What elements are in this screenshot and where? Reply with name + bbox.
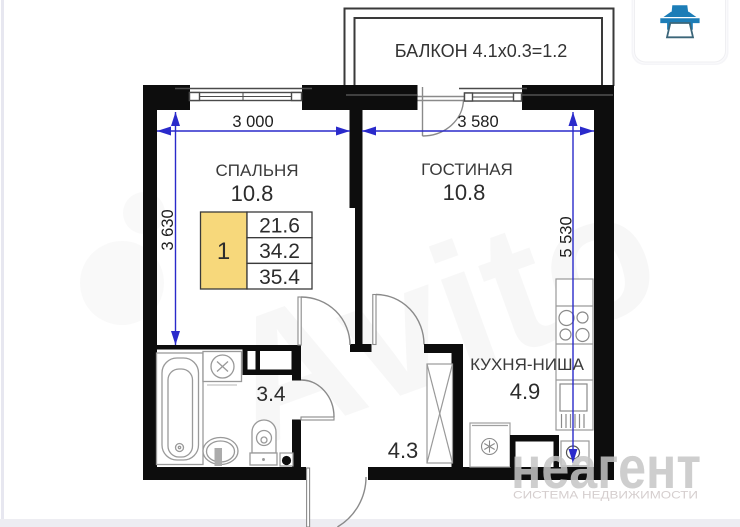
svg-text:БАЛКОН 4.1x0.3=1.2: БАЛКОН 4.1x0.3=1.2 [395,41,568,61]
svg-text:5 530: 5 530 [558,216,576,257]
svg-text:4.3: 4.3 [388,438,419,463]
svg-text:10.8: 10.8 [231,181,274,206]
svg-text:КУХНЯ-НИША: КУХНЯ-НИША [470,355,585,374]
svg-text:СПАЛЬНЯ: СПАЛЬНЯ [215,161,298,180]
svg-text:3 630: 3 630 [159,209,177,250]
svg-text:3 000: 3 000 [232,113,273,131]
svg-text:21.6: 21.6 [259,215,300,238]
svg-text:4.9: 4.9 [510,379,541,404]
svg-text:34.2: 34.2 [259,240,300,263]
svg-text:3.4: 3.4 [256,383,286,406]
svg-text:СИСТЕМА НЕДВИЖИМОСТИ: СИСТЕМА НЕДВИЖИМОСТИ [513,490,698,502]
svg-text:1: 1 [217,238,230,265]
svg-text:35.4: 35.4 [259,266,300,289]
svg-text:ГОСТИНАЯ: ГОСТИНАЯ [421,160,513,179]
svg-text:10.8: 10.8 [443,180,486,205]
svg-text:3 580: 3 580 [457,113,498,131]
